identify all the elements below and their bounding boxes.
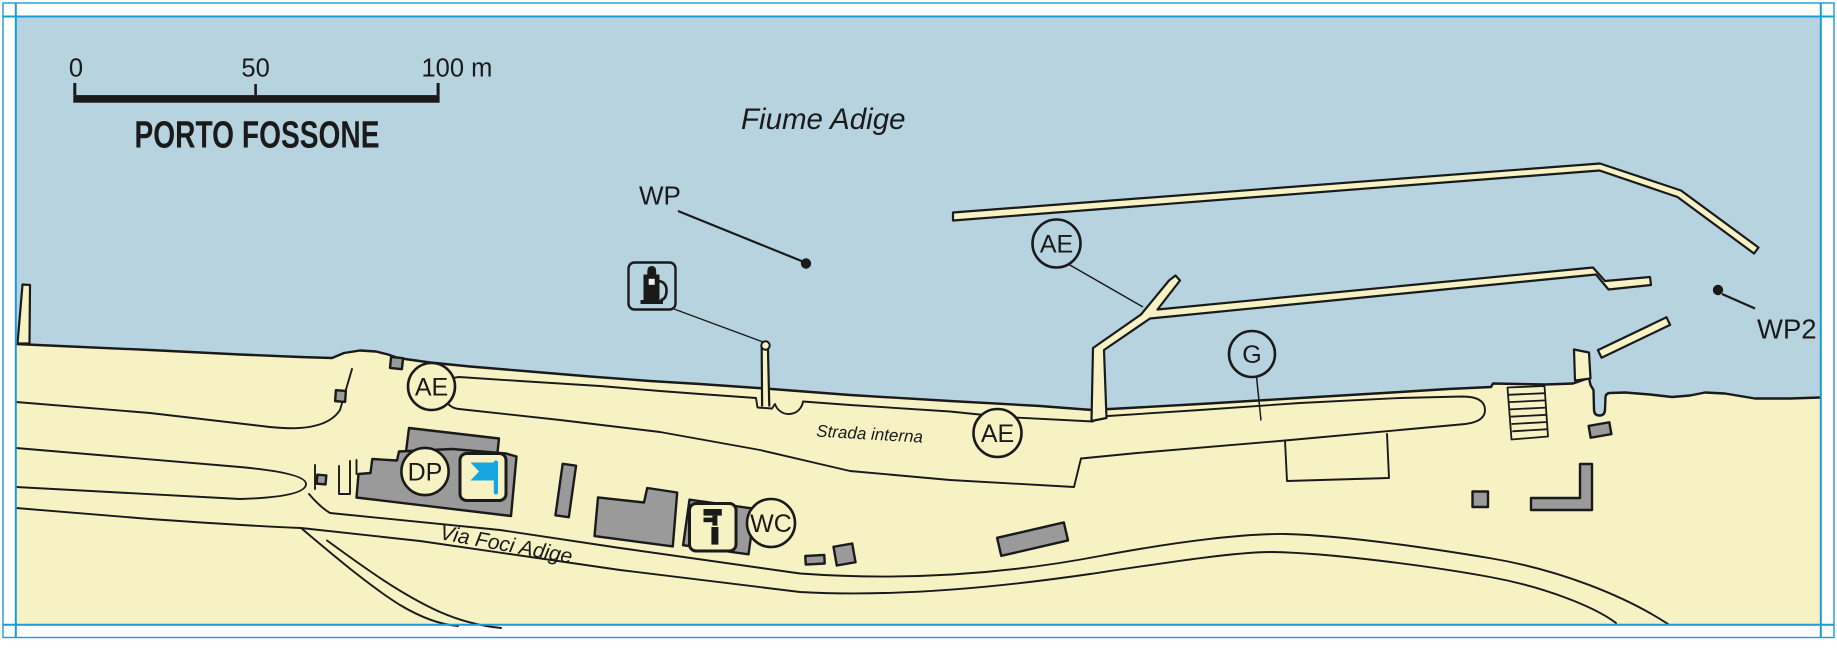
svg-text:Fiume Adige: Fiume Adige	[741, 103, 906, 136]
svg-text:AE: AE	[415, 374, 448, 402]
svg-text:WP: WP	[639, 181, 681, 211]
svg-text:AE: AE	[1040, 231, 1073, 259]
svg-text:G: G	[1242, 341, 1261, 369]
svg-text:50: 50	[241, 55, 269, 83]
svg-text:PORTO FOSSONE: PORTO FOSSONE	[135, 115, 380, 157]
svg-text:WC: WC	[750, 510, 792, 538]
svg-text:100 m: 100 m	[422, 55, 493, 83]
svg-text:WP2: WP2	[1757, 314, 1817, 345]
svg-text:AE: AE	[981, 420, 1014, 448]
svg-text:0: 0	[69, 55, 83, 83]
svg-text:DP: DP	[408, 459, 443, 487]
